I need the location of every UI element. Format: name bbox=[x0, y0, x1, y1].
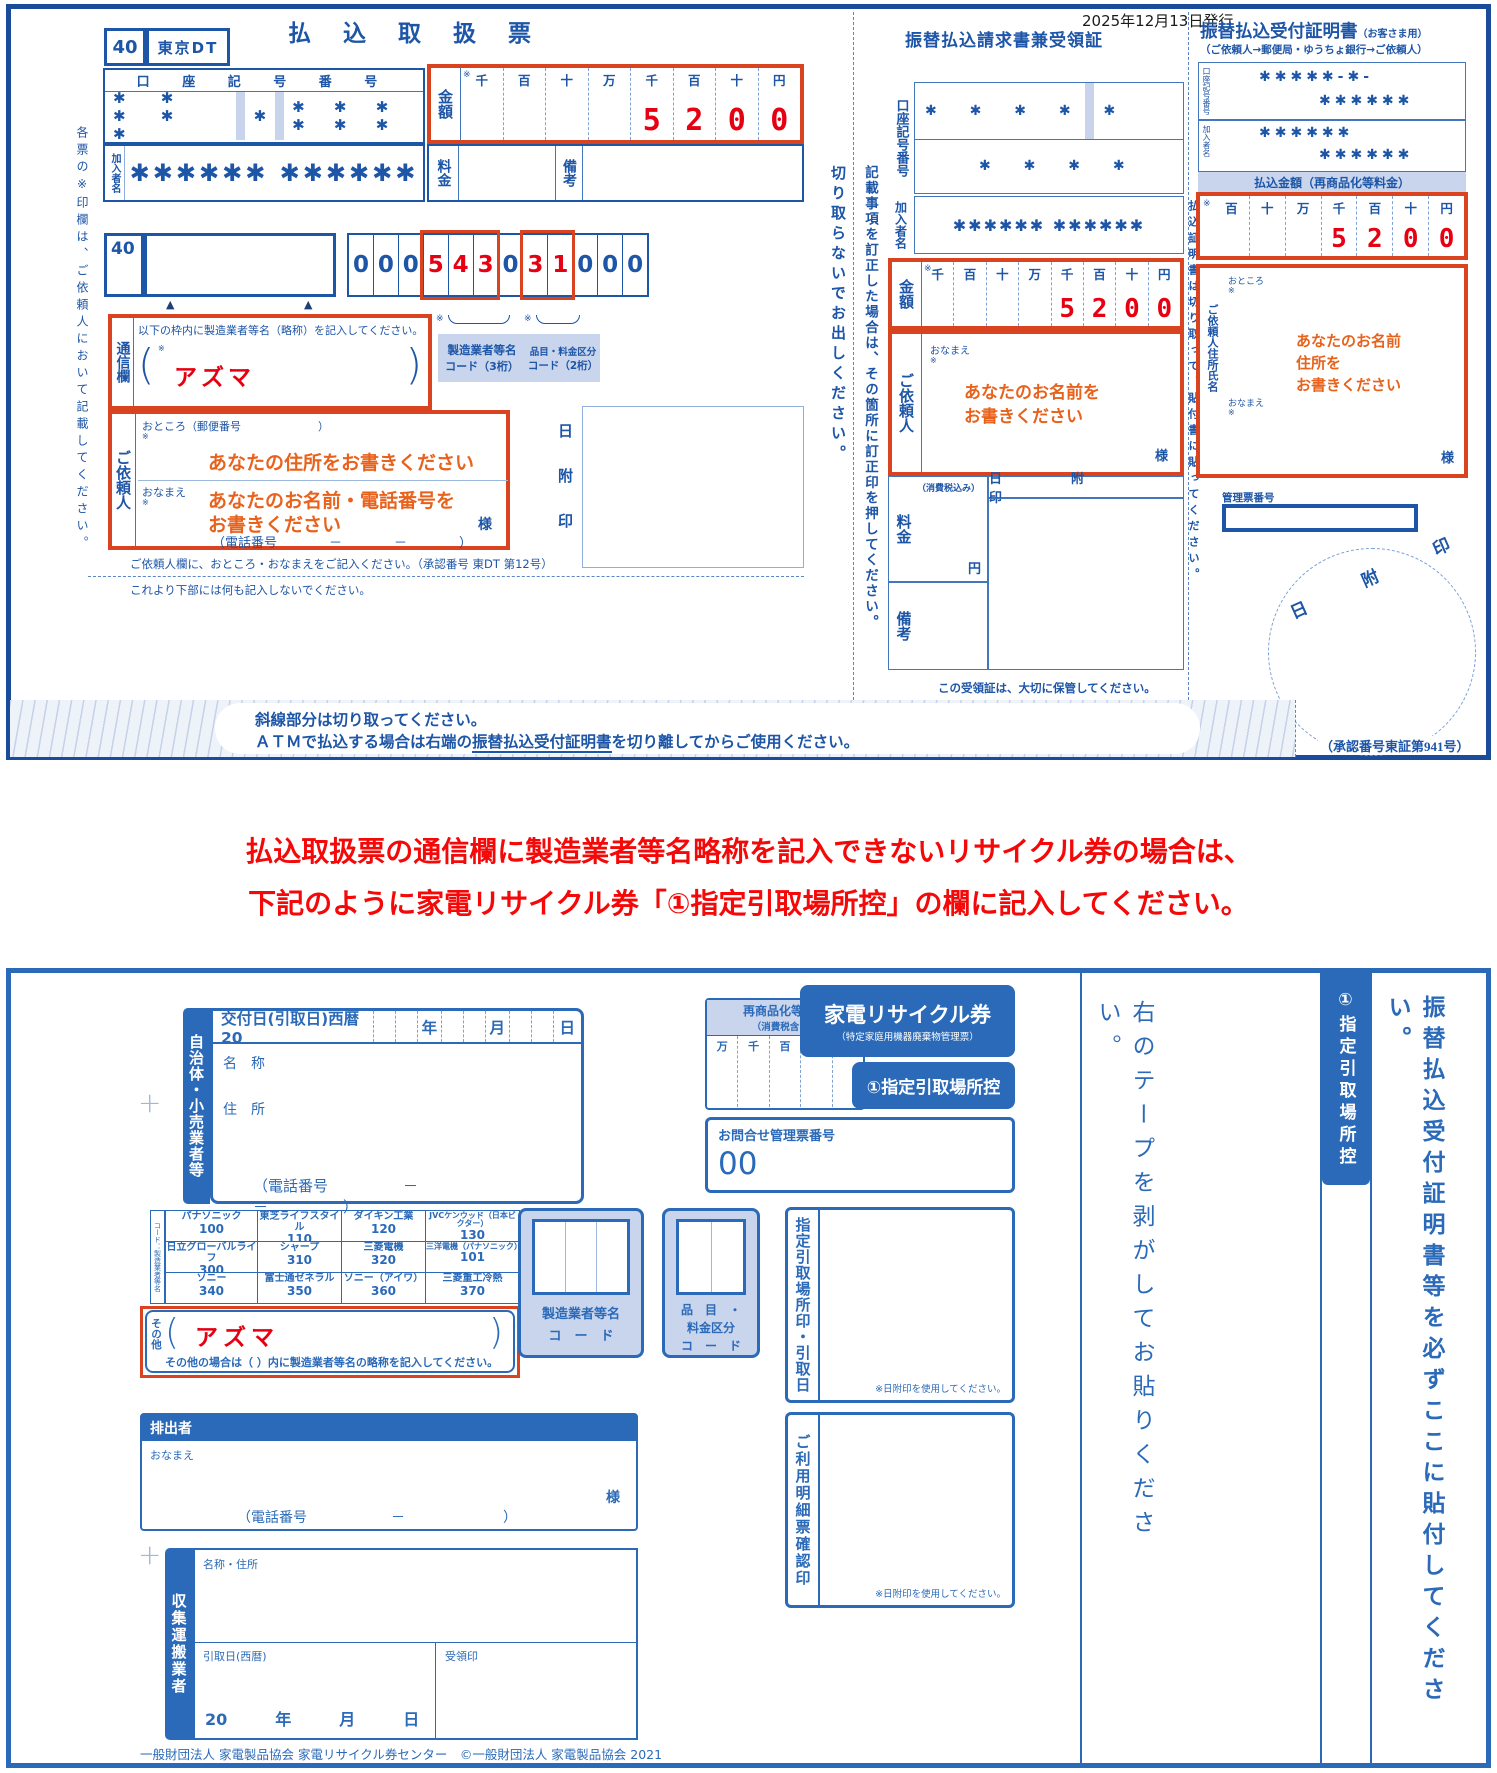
amount-col: 万 bbox=[589, 70, 631, 89]
date-stamp-char: 附 bbox=[558, 465, 573, 486]
date-cell[interactable] bbox=[373, 1011, 395, 1042]
correspondence-value[interactable]: アズマ bbox=[174, 358, 255, 392]
cert-member-line-2: ✱✱✱✱✱✱ bbox=[1319, 147, 1413, 163]
cert-client-label: ご依頼人住所氏名 bbox=[1204, 304, 1220, 464]
cut-note-2: 記載事項を訂正した場合は、その箇所に訂正印を押してください。 bbox=[860, 165, 880, 665]
emitter-sama: 様 bbox=[606, 1487, 620, 1507]
date-stamp-char: 印 bbox=[558, 510, 573, 531]
maker-table: コード：製造業者等名 パナソニック100 東芝ライフスタイル110 ダイキン工業… bbox=[150, 1210, 520, 1304]
paren-open: ( bbox=[138, 340, 154, 389]
item-code-box-label-2: 料金区分 bbox=[665, 1319, 757, 1336]
amount-col: 万 bbox=[1019, 264, 1050, 283]
ref-mark: ※ bbox=[158, 344, 165, 353]
amount-col: 十 bbox=[987, 264, 1018, 283]
cert-amount-box[interactable]: ※ 百 十 万 千5 百2 十0 円0 bbox=[1196, 192, 1468, 260]
ref-mark: ※ bbox=[1228, 408, 1235, 417]
issue-date-label: 交付日(引取日)西暦 20 bbox=[213, 1007, 373, 1047]
maker-code-label-2: コード（3桁） bbox=[445, 358, 519, 374]
date-cell[interactable] bbox=[531, 1011, 553, 1042]
client-address-label: おところ（郵便番号 ） bbox=[142, 418, 329, 434]
account-divider-cell bbox=[275, 92, 284, 140]
emitter-box[interactable]: 排出者 おなまえ 様 （電話番号 － ） bbox=[140, 1413, 638, 1531]
date-cell[interactable] bbox=[463, 1011, 485, 1042]
brace-item bbox=[536, 315, 580, 324]
paste-note: 振替払込受付証明書等を必ずここに貼付してください。 bbox=[1380, 995, 1448, 1711]
amount-digit: 0 bbox=[1149, 294, 1180, 324]
receipt-amount-label: 金額 bbox=[892, 262, 922, 326]
transporter-tab: 収集運搬業者 bbox=[165, 1548, 193, 1740]
notice-line-1: 払込取扱票の通信欄に製造業者等名略称を記入できないリサイクル券の場合は、 bbox=[0, 830, 1497, 870]
client-address-hint: あなたの住所をお書きください bbox=[208, 448, 474, 475]
brace-maker bbox=[448, 315, 510, 324]
amount-col: 十 bbox=[1393, 198, 1428, 217]
maker-cell: 富士通ゼネラル350 bbox=[257, 1273, 341, 1304]
slip-cut-rule bbox=[88, 576, 804, 577]
cert-subtitle: （ご依頼人→郵便局・ゆうちょ銀行→ご依頼人） bbox=[1200, 42, 1428, 57]
slip-member-value: ✱✱✱✱✱✱ ✱✱✱✱✱✱ bbox=[125, 146, 423, 200]
item-code-box-label-1: 品 目 ・ bbox=[665, 1301, 757, 1318]
ticket-divider-1 bbox=[1080, 973, 1082, 1764]
item-code-label-2: コード（2桁） bbox=[528, 358, 598, 373]
amount-digit: 5 bbox=[631, 103, 673, 138]
digit-cell: 0 bbox=[349, 235, 373, 295]
amount-col: 千 bbox=[922, 264, 953, 283]
inquiry-value: 00 bbox=[708, 1144, 1012, 1182]
receipt-client-sama: 様 bbox=[1155, 445, 1168, 464]
receipt-account-stars-2[interactable]: ✱ ✱ ✱ ✱ bbox=[915, 158, 1139, 174]
day-label: 日 bbox=[554, 1016, 582, 1038]
maker-code-label: 製造業者等名 コード（3桁） bbox=[438, 334, 526, 382]
cert-hint-3: お書きください bbox=[1296, 374, 1401, 395]
cert-mgmt-box[interactable] bbox=[1222, 504, 1418, 532]
issuer-addr-label: 住 所 bbox=[223, 1099, 265, 1119]
item-code-label: 品目・料金区分 コード（2桁） bbox=[526, 334, 600, 382]
cert-sama: 様 bbox=[1441, 447, 1454, 466]
emitter-header: 排出者 bbox=[142, 1415, 636, 1441]
maker-code-box-label-1: 製造業者等名 bbox=[521, 1303, 641, 1322]
ref-mark: ※ bbox=[142, 432, 149, 441]
slip-blank-box[interactable] bbox=[144, 233, 336, 297]
ref-mark: ※ bbox=[930, 356, 937, 365]
receipt-client-hint-2: お書きください bbox=[964, 402, 1083, 427]
client-label: ご依頼人 bbox=[112, 414, 136, 546]
cut-band-line-1: 斜線部分は切り取ってください。 bbox=[255, 708, 1200, 730]
issuer-tab: 自治体・小売業者等 bbox=[183, 1008, 210, 1204]
cut-band-line-2c: を切り離してからご使用ください。 bbox=[612, 733, 860, 751]
amount-col: 千 bbox=[461, 70, 503, 89]
receipt-client-hint-1: あなたのお名前を bbox=[964, 378, 1100, 403]
amount-col: 百 bbox=[1084, 264, 1115, 283]
date-stamp-char: 日 bbox=[558, 420, 573, 441]
maker-cell: JVCケンウッド（日本ビクター）130 bbox=[425, 1211, 519, 1242]
cut-band-line-2: ＡＴＭで払込する場合は右端の振替払込受付証明書を切り離してからご使用ください。 bbox=[255, 730, 1200, 752]
digit-cell: 0 bbox=[622, 235, 647, 295]
receipt-member-label: 加入者名 bbox=[890, 198, 912, 252]
fee-col: 千 bbox=[738, 1038, 768, 1054]
maker-code-label-1: 製造業者等名 bbox=[448, 342, 517, 358]
maker-cell: 三洋電機（パナソニック）101 bbox=[425, 1242, 519, 1273]
amount-digit: 5 bbox=[1322, 224, 1357, 254]
amount-col: 万 bbox=[1286, 198, 1321, 217]
receipt-account-label: 口座記号番号 bbox=[890, 84, 912, 192]
ref-mark: ※ bbox=[142, 498, 149, 507]
correspondence-instruction: 以下の枠内に製造業者等名（略称）を記入してください。 bbox=[138, 322, 423, 338]
amount-col: 十 bbox=[546, 70, 588, 89]
slip-fee-box: 料金 備考 bbox=[427, 144, 804, 202]
paren-close: ) bbox=[406, 340, 422, 389]
cert-account-line-2: ✱✱✱✱✱✱ bbox=[1319, 93, 1413, 109]
amount-digit: 2 bbox=[1084, 294, 1115, 324]
receipt-client-box[interactable]: ご依頼人 おなまえ ※ あなたのお名前を お書きください 様 bbox=[888, 330, 1184, 476]
usage-stamp-label: ご利用明細票確認印 bbox=[788, 1415, 820, 1605]
maker-cell: ダイキン工業120 bbox=[341, 1211, 425, 1242]
usage-stamp-box[interactable]: ご利用明細票確認印 ※日附印を使用してください。 bbox=[785, 1412, 1015, 1608]
other-label: その他 bbox=[149, 1314, 164, 1354]
client-sama: 様 bbox=[478, 514, 492, 534]
slip-fee-label: 料金 bbox=[429, 146, 459, 200]
cert-account-box: 口座記号番号 ✱✱✱✱✱-✱- ✱✱✱✱✱✱ bbox=[1198, 62, 1466, 120]
other-maker-box[interactable]: その他 ( アズマ ) その他の場合は（ ）内に製造業者等名の略称を記入してくだ… bbox=[145, 1310, 515, 1373]
issuer-name-label: 名 称 bbox=[223, 1053, 265, 1073]
cert-member-line-1: ✱✱✱✱✱✱ bbox=[1259, 125, 1353, 141]
amount-col: 百 bbox=[1214, 198, 1249, 217]
slip-stamp-box bbox=[582, 406, 804, 568]
maker-table-side-label: コード：製造業者等名 bbox=[150, 1211, 165, 1304]
amount-col: 十 bbox=[1116, 264, 1147, 283]
account-divider-cell bbox=[1085, 83, 1094, 139]
amount-digit: 0 bbox=[716, 103, 758, 138]
receipt-remarks-label: 備考 bbox=[893, 583, 915, 669]
receipt-amount-box[interactable]: 金額 ※ 千 百 十 万 千5 百2 十0 円0 bbox=[888, 258, 1184, 330]
item-code-box-label-3: コ ー ド bbox=[665, 1337, 757, 1354]
receipt-client-label: ご依頼人 bbox=[892, 334, 922, 472]
crop-mark: + bbox=[138, 1538, 161, 1571]
amount-col: 円 bbox=[1149, 264, 1180, 283]
amount-col: 千 bbox=[1052, 264, 1083, 283]
ref-mark: ※ bbox=[1203, 199, 1211, 209]
slip-note-2: これより下部には何も記入しないでください。 bbox=[130, 582, 371, 598]
maker-cell: シャープ310 bbox=[257, 1242, 341, 1273]
copy-label-box: ①指定引取場所控 bbox=[852, 1062, 1015, 1109]
account-divider-cell bbox=[236, 92, 245, 140]
date-cell[interactable] bbox=[441, 1011, 463, 1042]
transporter-name-label: 名称・住所 bbox=[203, 1556, 258, 1572]
receipt-stamp-label: 受領印 bbox=[445, 1648, 478, 1664]
notice-line-2: 下記のように家電リサイクル券「①指定引取場所控」の欄に記入してください。 bbox=[0, 882, 1497, 922]
cert-title: 振替払込受付証明書（お客さま用） bbox=[1200, 18, 1428, 43]
receipt-keep-note: この受領証は、大切に保管してください。 bbox=[938, 680, 1156, 696]
item-code-label-1: 品目・料金区分 bbox=[530, 344, 597, 358]
edge-copy-tab: ①指定引取場所控 bbox=[1322, 973, 1370, 1185]
triangle-mark: ▲ bbox=[304, 298, 312, 311]
page: 2025年12月13日発行 各票の※印欄は、ご依頼人において記載してください。 … bbox=[0, 0, 1497, 1773]
maker-code-box[interactable]: 製造業者等名 コ ー ド bbox=[518, 1208, 644, 1358]
triangle-mark: ▲ bbox=[166, 298, 174, 311]
receipt-stamp-box bbox=[988, 498, 1184, 670]
maker-cell: 三菱重工冷熱370 bbox=[425, 1273, 519, 1304]
year-label: 年 bbox=[418, 1016, 442, 1038]
receipt-member-value: ✱✱✱✱✱✱ ✱✱✱✱✱✱ bbox=[914, 196, 1184, 254]
receipt-remarks-box: 備考 bbox=[888, 582, 988, 670]
client-row-divider bbox=[138, 480, 508, 481]
slip-correspondence-box[interactable]: 通信欄 以下の枠内に製造業者等名（略称）を記入してください。 ( ※ アズマ ) bbox=[108, 314, 432, 410]
receipt-account-stars[interactable]: ✱ ✱ ✱ ✱ bbox=[915, 103, 1085, 119]
slip-member-label: 加入者名 bbox=[105, 146, 125, 200]
transporter-divider-h bbox=[195, 1642, 636, 1643]
slip-office-box: 東京DT bbox=[146, 28, 230, 66]
ref-mark: ※ bbox=[436, 314, 444, 324]
cert-hint-1: あなたのお名前 bbox=[1296, 330, 1401, 351]
account-stars[interactable]: ✱ ✱ ✱ ✱ ✱ ✱ bbox=[284, 98, 423, 134]
ref-mark: ※ bbox=[524, 314, 532, 324]
tape-note: 右のテープを剥がしてお貼りください。 bbox=[1090, 1000, 1158, 1575]
account-star[interactable]: ✱ bbox=[245, 107, 276, 125]
other-value[interactable]: アズマ bbox=[195, 1318, 279, 1352]
slip-amount-label: 金額 bbox=[431, 68, 461, 140]
cert-member-box: 加入者名 ✱✱✱✱✱✱ ✱✱✱✱✱✱ bbox=[1198, 120, 1466, 172]
maker-cell: ソニー（アイワ）360 bbox=[341, 1273, 425, 1304]
ticket-title-box: 家電リサイクル券 （特定家庭用機器廃棄物管理票） bbox=[800, 985, 1015, 1057]
digit-cell: 0 bbox=[572, 235, 597, 295]
slip-note-1: ご依頼人欄に、おところ・おなまえをご記入ください。（承認番号 東DT 第12号） bbox=[130, 556, 553, 572]
stamp-note: ※日附印を使用してください。 bbox=[875, 1381, 1006, 1395]
account-stars[interactable]: ✱ ✱ ✱ ✱ ✱ bbox=[105, 89, 236, 143]
maker-cell: パナソニック100 bbox=[165, 1211, 257, 1242]
fee-col: 万 bbox=[707, 1038, 737, 1054]
cert-account-label: 口座記号番号 bbox=[1201, 67, 1212, 117]
client-name-hint-1: あなたのお名前・電話番号を bbox=[208, 486, 455, 513]
cut-band-line-2b: 振替払込受付証明書 bbox=[472, 733, 612, 753]
receipt-account-box: ✱ ✱ ✱ ✱ ✱ ✱ ✱ ✱ ✱ bbox=[914, 82, 1184, 194]
cert-title-sub: （お客さま用） bbox=[1358, 29, 1428, 40]
slip-client-box[interactable]: ご依頼人 おところ（郵便番号 ） ※ あなたの住所をお書きください おなまえ ※… bbox=[108, 410, 510, 550]
cut-band-message: 斜線部分は切り取ってください。 ＡＴＭで払込する場合は右端の振替払込受付証明書を… bbox=[215, 703, 1200, 754]
maker-cell: 東芝ライフスタイル110 bbox=[257, 1211, 341, 1242]
fee-col: 百 bbox=[770, 1038, 800, 1054]
amount-col: 十 bbox=[716, 70, 758, 89]
emitter-name-label: おなまえ bbox=[150, 1447, 194, 1463]
issuer-box[interactable]: 交付日(引取日)西暦 20 年 月 日 名 称 住 所 （電話番号 － － ） bbox=[210, 1008, 584, 1204]
receipt-title: 振替払込請求書兼受領証 bbox=[905, 26, 1103, 51]
cut-band-line-2a: ＡＴＭで払込する場合は右端の bbox=[255, 733, 472, 751]
client-phone-label: （電話番号 － － ） bbox=[212, 532, 472, 551]
digit-cell: 0 bbox=[373, 235, 398, 295]
amount-col: 百 bbox=[504, 70, 546, 89]
slip-amount-box[interactable]: 金額 ※ 千 百 十 万 千5 百2 十0 円0 bbox=[427, 64, 804, 144]
paren-close: ) bbox=[489, 1312, 503, 1353]
paren-open: ( bbox=[165, 1312, 179, 1353]
ticket-title: 家電リサイクル券 bbox=[824, 999, 991, 1029]
amount-col: 千 bbox=[1322, 198, 1357, 217]
slip-account-box: 口 座 記 号 番 号 ✱ ✱ ✱ ✱ ✱ ✱ ✱ ✱ ✱ ✱ ✱ ✱ bbox=[103, 68, 425, 144]
amount-digit: 2 bbox=[1357, 224, 1392, 254]
transporter-divider-v bbox=[435, 1642, 436, 1739]
date-cell[interactable] bbox=[509, 1011, 531, 1042]
inquiry-box[interactable]: お問合せ管理票番号 00 bbox=[705, 1117, 1015, 1193]
item-code-highlight bbox=[520, 230, 575, 300]
maker-cell: ソニー340 bbox=[165, 1273, 257, 1304]
maker-code-box-label-2: コ ー ド bbox=[521, 1325, 641, 1344]
maker-cell: 三菱電機320 bbox=[341, 1242, 425, 1273]
amount-col: 円 bbox=[759, 70, 801, 89]
cert-member-label: 加入者名 bbox=[1201, 125, 1212, 169]
cert-client-box[interactable]: ご依頼人住所氏名 おところ ※ あなたのお名前 住所を お書きください おなまえ… bbox=[1196, 264, 1468, 478]
ref-mark: ※ bbox=[1228, 286, 1235, 295]
amount-col: 千 bbox=[631, 70, 673, 89]
pickup-date-label: 引取日(西暦) bbox=[203, 1648, 267, 1664]
cert-approval: （承認番号東証第941号） bbox=[1318, 736, 1472, 755]
pickup-stamp-label: 指定引取場所印・引取日 bbox=[788, 1210, 820, 1400]
cut-note-1: 切り取らないでお出しください。 bbox=[828, 165, 849, 495]
maker-code-highlight bbox=[420, 230, 500, 300]
ticket-divider-3 bbox=[1370, 973, 1372, 1764]
cert-mgmt-label: 管理票番号 bbox=[1222, 490, 1275, 505]
receipt-client-name-label: おなまえ bbox=[930, 342, 970, 357]
transporter-box[interactable]: 名称・住所 引取日(西暦) 受領印 20 年 月 日 bbox=[193, 1548, 638, 1740]
amount-digit: 0 bbox=[1429, 224, 1464, 254]
amount-digit: 5 bbox=[1052, 294, 1083, 324]
perforation-line-3 bbox=[1295, 700, 1296, 757]
amount-col: 百 bbox=[674, 70, 716, 89]
other-note: その他の場合は（ ）内に製造業者等名の略称を記入してください。 bbox=[165, 1354, 498, 1370]
amount-digit: 0 bbox=[1393, 224, 1428, 254]
amount-col: 十 bbox=[1250, 198, 1285, 217]
slip-title: 払 込 取 扱 票 bbox=[288, 14, 543, 48]
amount-col: 円 bbox=[1429, 198, 1464, 217]
cert-account-line-1: ✱✱✱✱✱-✱- bbox=[1259, 69, 1373, 85]
digit-cell: 0 bbox=[597, 235, 622, 295]
digit-cell: 0 bbox=[498, 235, 523, 295]
slip-member-box: 加入者名 ✱✱✱✱✱✱ ✱✱✱✱✱✱ bbox=[103, 144, 425, 202]
cert-stamp-circle bbox=[1268, 548, 1476, 756]
correspondence-label: 通信欄 bbox=[112, 318, 134, 406]
inquiry-label: お問合せ管理票番号 bbox=[708, 1120, 1012, 1144]
item-code-box[interactable]: 品 目 ・ 料金区分 コ ー ド bbox=[662, 1208, 760, 1358]
slip-side-note: 各票の※印欄は、ご依頼人において記載してください。 bbox=[74, 126, 91, 596]
cert-amount-header: 払込金額（再商品化等料金） bbox=[1198, 172, 1466, 192]
crop-mark: + bbox=[138, 1086, 161, 1119]
cert-title-main: 振替払込受付証明書 bbox=[1200, 22, 1358, 42]
receipt-stamp-header: 日 附 印 bbox=[988, 476, 1184, 498]
receipt-yen: 円 bbox=[968, 558, 981, 577]
ticket-footer: 一般財団法人 家電製品協会 家電リサイクル券センター ©一般財団法人 家電製品協… bbox=[140, 1744, 662, 1763]
pickup-stamp-box[interactable]: 指定引取場所印・引取日 ※日附印を使用してください。 bbox=[785, 1207, 1015, 1403]
month-label: 月 bbox=[486, 1016, 510, 1038]
ticket-subtitle: （特定家庭用機器廃棄物管理票） bbox=[836, 1029, 979, 1043]
receipt-fee-label: 料金 bbox=[893, 477, 915, 581]
receipt-fee-box: 料金 （消費税込み） 円 bbox=[888, 476, 988, 582]
amount-digit: 2 bbox=[674, 103, 716, 138]
amount-col: 百 bbox=[1357, 198, 1392, 217]
perforation-line-1 bbox=[853, 12, 854, 700]
slip-remarks-label: 備考 bbox=[555, 146, 583, 200]
amount-digit: 0 bbox=[1116, 294, 1147, 324]
stamp-note: ※日附印を使用してください。 bbox=[875, 1586, 1006, 1600]
date-cell[interactable] bbox=[395, 1011, 417, 1042]
slip-code-box: 40 bbox=[104, 28, 146, 66]
receipt-account-star[interactable]: ✱ bbox=[1094, 103, 1126, 119]
receipt-fee-tax: （消費税込み） bbox=[917, 481, 980, 494]
cert-hint-2: 住所を bbox=[1296, 352, 1341, 373]
amount-col: 百 bbox=[954, 264, 985, 283]
amount-digit: 0 bbox=[759, 103, 801, 138]
pickup-date-line: 20 年 月 日 bbox=[205, 1706, 419, 1730]
emitter-phone-label: （電話番号 － ） bbox=[237, 1507, 517, 1527]
slip-code2-box: 40 bbox=[104, 233, 144, 297]
maker-cell: 日立グローバルライフ300 bbox=[165, 1242, 257, 1273]
